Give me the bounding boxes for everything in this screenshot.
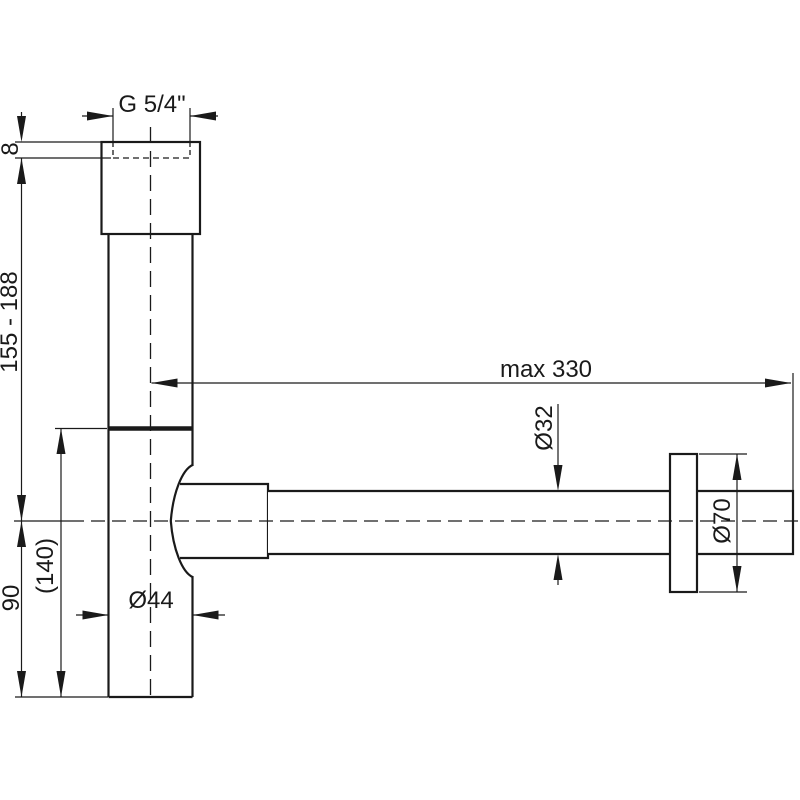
arrowhead xyxy=(17,521,26,547)
siphon-dimension-drawing: G 5/4" 8 155 - 188 90 (140) Ø44 max 330 … xyxy=(0,0,800,800)
arrowhead xyxy=(17,671,26,697)
thread-depth-label: 8 xyxy=(0,142,24,155)
arrowhead xyxy=(57,671,66,697)
dim-overall-height xyxy=(55,429,107,698)
pipe-diameter-label: Ø32 xyxy=(531,405,558,450)
arrowhead xyxy=(57,429,66,455)
max-reach-label: max 330 xyxy=(500,356,592,383)
body-height-label: 90 xyxy=(0,585,25,612)
arrowhead xyxy=(733,454,742,480)
arrowhead xyxy=(733,566,742,592)
arrowhead xyxy=(17,495,26,521)
arrowhead xyxy=(190,112,216,121)
arrowhead xyxy=(17,116,26,142)
arrowhead xyxy=(83,611,109,620)
arrowhead xyxy=(193,611,219,620)
height-range-label: 155 - 188 xyxy=(0,271,23,372)
thread-size-label: G 5/4" xyxy=(118,91,185,118)
technical-drawing: G 5/4" 8 155 - 188 90 (140) Ø44 max 330 … xyxy=(0,0,800,800)
arrowhead xyxy=(554,465,563,491)
body-diameter-label: Ø44 xyxy=(128,587,173,614)
arrowhead xyxy=(87,112,113,121)
arrowhead xyxy=(765,379,791,388)
arrowhead xyxy=(152,379,178,388)
wall-flange-outline xyxy=(670,454,697,592)
arrowhead xyxy=(554,554,563,580)
flange-diameter-label: Ø70 xyxy=(709,498,736,543)
dim-depth-8 xyxy=(15,112,111,184)
overall-height-label: (140) xyxy=(32,538,59,594)
